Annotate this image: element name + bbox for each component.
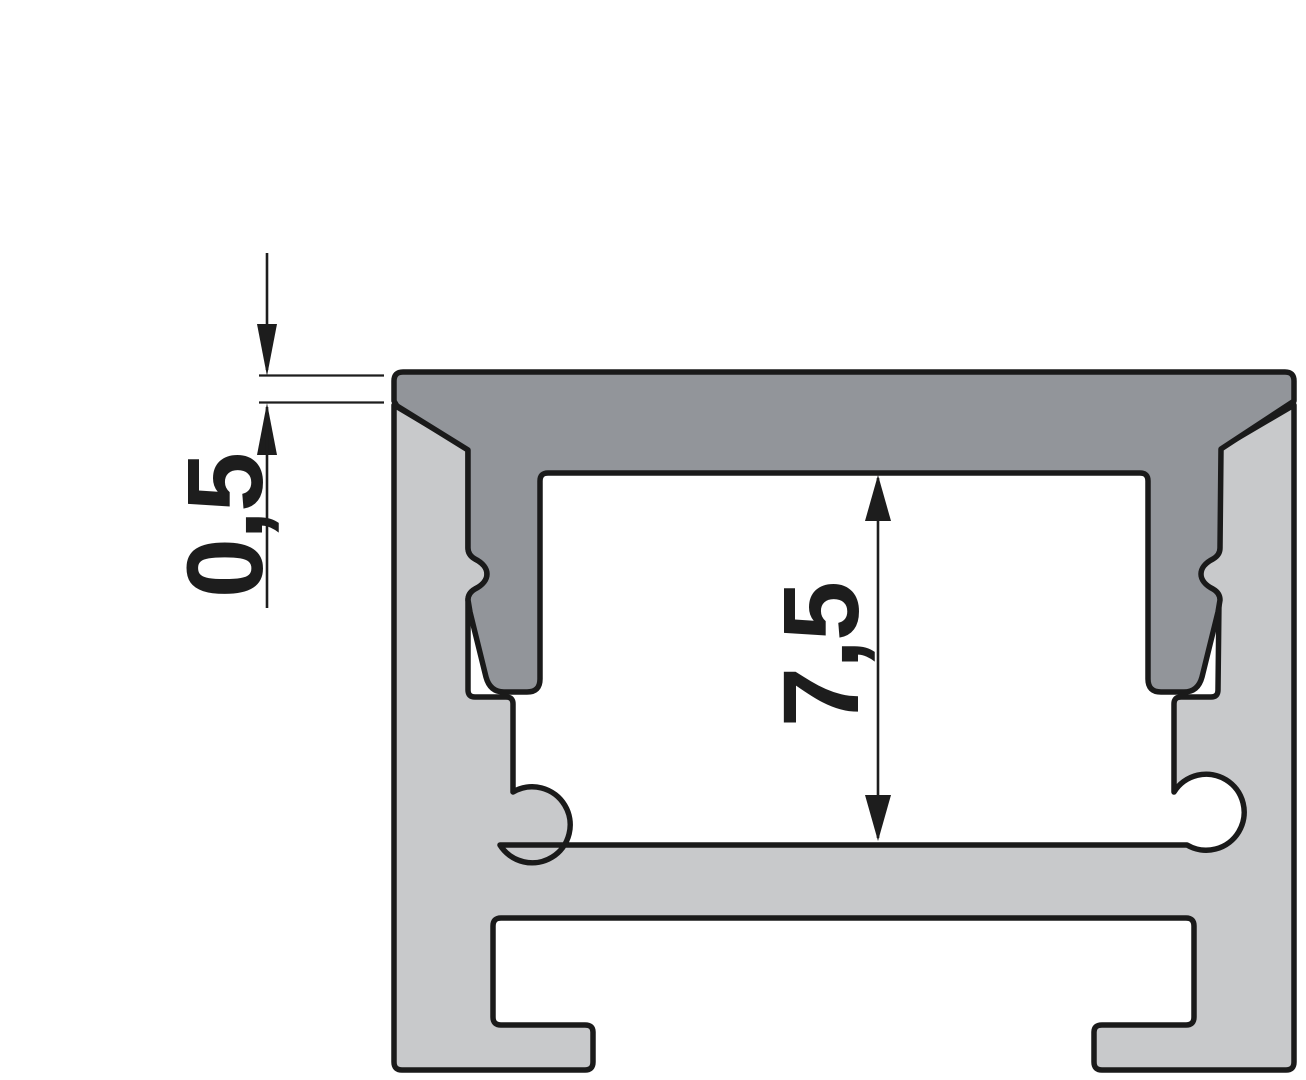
dimension-label-cover-protrusion: 0,5 xyxy=(164,454,285,598)
dimension-inner-height: 7,5 xyxy=(760,475,891,841)
arrowhead-up xyxy=(865,475,891,521)
profile-cross-section-drawing: 0,5 7,5 xyxy=(0,0,1306,1080)
arrowhead-down xyxy=(257,324,277,376)
dimension-label-inner-height: 7,5 xyxy=(760,583,881,727)
dimension-cover-protrusion: 0,5 xyxy=(164,253,384,608)
arrowhead-down xyxy=(865,795,891,841)
technical-drawing-canvas: 0,5 7,5 xyxy=(0,0,1306,1080)
